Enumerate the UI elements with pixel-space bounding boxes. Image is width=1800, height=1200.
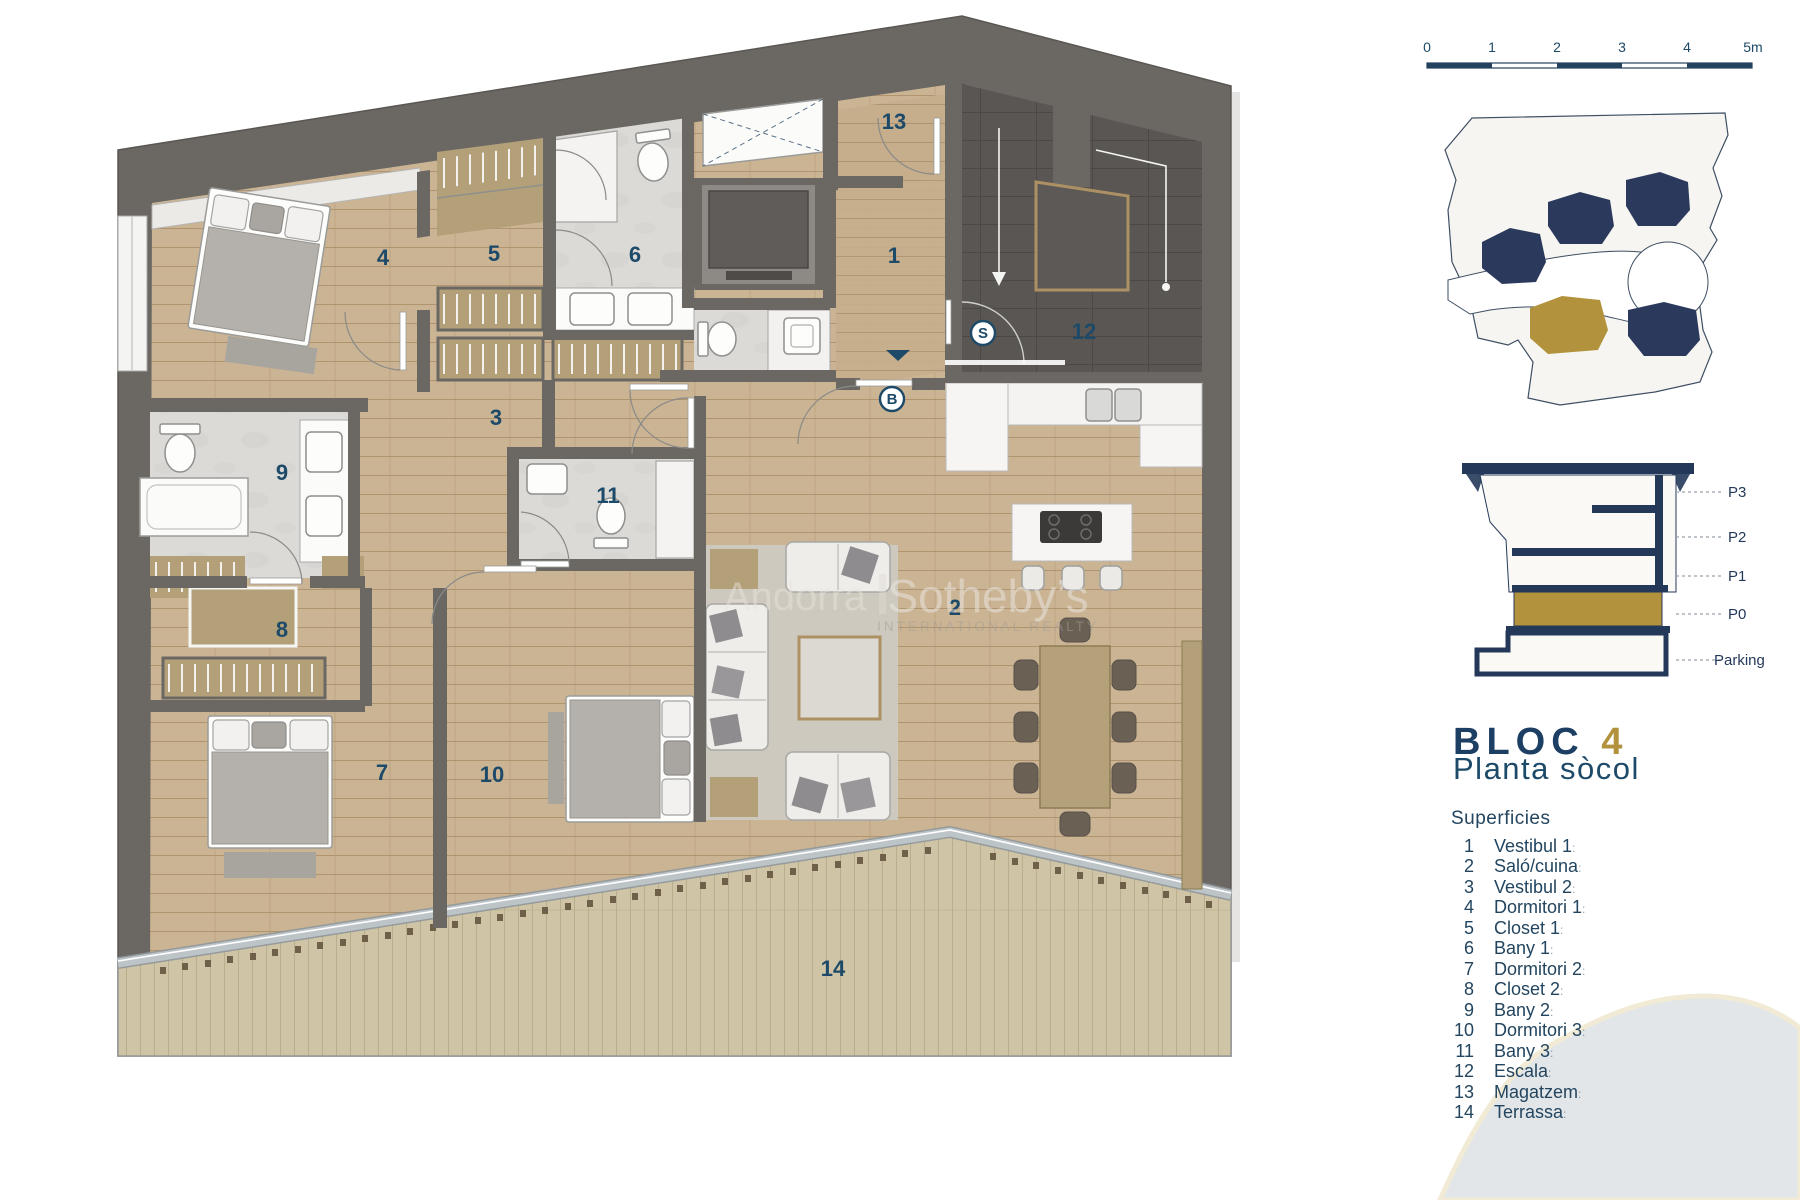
svg-text:B: B xyxy=(887,391,898,408)
svg-text:1: 1 xyxy=(888,243,900,268)
svg-text:Dormitori 3:: Dormitori 3: xyxy=(1494,1020,1585,1040)
svg-text:Bany 2:: Bany 2: xyxy=(1494,1000,1553,1020)
svg-text:14: 14 xyxy=(821,956,846,981)
svg-text:7: 7 xyxy=(1464,959,1474,979)
svg-text:4: 4 xyxy=(1683,39,1691,55)
svg-text:3: 3 xyxy=(1618,39,1626,55)
svg-text:P1: P1 xyxy=(1728,568,1746,585)
svg-text:2: 2 xyxy=(1553,39,1561,55)
svg-text:10: 10 xyxy=(480,762,504,787)
svg-text:Magatzem:: Magatzem: xyxy=(1494,1082,1581,1102)
svg-text:9: 9 xyxy=(1464,1000,1474,1020)
svg-text:Parking: Parking xyxy=(1714,652,1765,669)
svg-text:7: 7 xyxy=(376,760,388,785)
svg-text:Saló/cuina:: Saló/cuina: xyxy=(1494,856,1581,876)
svg-text:11: 11 xyxy=(596,483,619,508)
svg-text:13: 13 xyxy=(1454,1082,1474,1102)
svg-text:Andorra: Andorra xyxy=(724,575,867,619)
svg-text:P0: P0 xyxy=(1728,606,1746,623)
svg-text:4: 4 xyxy=(1464,897,1474,917)
svg-text:INTERNATIONAL REALTY: INTERNATIONAL REALTY xyxy=(877,619,1099,634)
svg-text:12: 12 xyxy=(1072,319,1096,344)
svg-text:3: 3 xyxy=(1464,877,1474,897)
svg-text:Sotheby’s: Sotheby’s xyxy=(887,570,1088,622)
svg-text:3: 3 xyxy=(490,405,502,430)
svg-text:4: 4 xyxy=(377,245,390,270)
svg-text:8: 8 xyxy=(276,617,288,642)
svg-text:Bany 1:: Bany 1: xyxy=(1494,938,1553,958)
svg-text:8: 8 xyxy=(1464,979,1474,999)
svg-text:12: 12 xyxy=(1454,1061,1474,1081)
svg-text:2: 2 xyxy=(1464,856,1474,876)
svg-text:Dormitori 2:: Dormitori 2: xyxy=(1494,959,1585,979)
svg-text:P2: P2 xyxy=(1728,529,1746,546)
svg-text:1: 1 xyxy=(1464,836,1474,856)
svg-text:Escala:: Escala: xyxy=(1494,1061,1551,1081)
svg-text:P3: P3 xyxy=(1728,484,1746,501)
svg-text:6: 6 xyxy=(1464,938,1474,958)
svg-text:11: 11 xyxy=(1455,1041,1474,1061)
svg-text:5: 5 xyxy=(488,241,500,266)
svg-text:Vestibul 2:: Vestibul 2: xyxy=(1494,877,1575,897)
svg-text:5m: 5m xyxy=(1743,39,1762,55)
svg-text:S: S xyxy=(978,325,988,342)
svg-text:Bany 3:: Bany 3: xyxy=(1494,1041,1553,1061)
svg-text:1: 1 xyxy=(1488,39,1496,55)
svg-text:13: 13 xyxy=(882,109,906,134)
svg-text:9: 9 xyxy=(276,460,288,485)
svg-text:0: 0 xyxy=(1423,39,1431,55)
svg-text:Terrassa:: Terrassa: xyxy=(1494,1102,1566,1122)
svg-text:Closet 2:: Closet 2: xyxy=(1494,979,1563,999)
svg-text:Vestibul 1:: Vestibul 1: xyxy=(1494,836,1575,856)
svg-text:Superficies: Superficies xyxy=(1451,808,1551,829)
svg-text:Planta sòcol: Planta sòcol xyxy=(1453,751,1640,786)
svg-text:10: 10 xyxy=(1454,1020,1474,1040)
svg-text:Closet 1:: Closet 1: xyxy=(1494,918,1563,938)
svg-text:6: 6 xyxy=(629,242,641,267)
svg-text:14: 14 xyxy=(1454,1102,1474,1122)
svg-text:Dormitori 1:: Dormitori 1: xyxy=(1494,897,1585,917)
svg-text:5: 5 xyxy=(1464,918,1474,938)
